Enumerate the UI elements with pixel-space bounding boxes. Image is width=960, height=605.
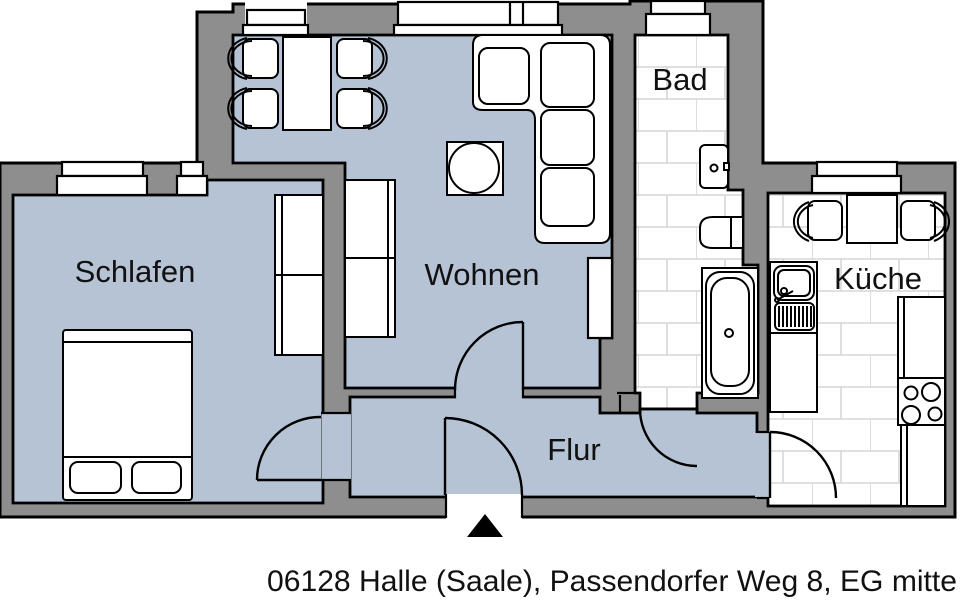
flur-label: Flur <box>547 432 600 467</box>
schlafen-wardrobe <box>275 195 323 355</box>
schlafen-window <box>62 162 143 176</box>
double-bed <box>63 330 192 500</box>
schlafen-label: Schlafen <box>75 254 196 289</box>
entrance-opening <box>446 494 522 519</box>
kueche-door-opening <box>755 433 769 497</box>
schlafen-door-opening <box>322 414 351 479</box>
wohnen-wardrobe <box>345 180 395 337</box>
radiator-niche <box>588 258 612 338</box>
counter-below-sink <box>770 333 817 412</box>
bad-window <box>651 1 705 14</box>
kueche-label: Küche <box>834 261 922 296</box>
coffee-table <box>447 142 503 195</box>
address-caption: 06128 Halle (Saale), Passendorfer Weg 8,… <box>267 565 957 598</box>
wohnen-window-left <box>247 10 305 25</box>
floor-plan-page: Schlafen Wohnen Bad Küche Flur 06128 Hal… <box>0 0 960 605</box>
kueche-window-sill <box>812 176 901 193</box>
bathtub <box>702 268 758 398</box>
wohnen-door-opening <box>456 386 522 399</box>
wohnen-window-right <box>398 2 558 25</box>
counter-bottom-right <box>901 425 945 506</box>
kitchen-table <box>847 195 897 243</box>
schlafen-wall-niche <box>181 162 203 176</box>
counter-right <box>898 297 945 378</box>
stove <box>898 378 945 425</box>
floor-plan-drawing: Schlafen Wohnen Bad Küche Flur 06128 Hal… <box>0 0 960 605</box>
wohnen-label: Wohnen <box>425 257 540 292</box>
dining-table <box>283 37 331 130</box>
toilet <box>700 217 743 248</box>
schlafen-window-sill <box>57 176 147 195</box>
bad-label: Bad <box>652 62 707 97</box>
bad-window-sill <box>646 14 710 35</box>
schlafen-wall-niche-sill <box>177 176 207 195</box>
washbasin <box>700 145 729 188</box>
kueche-window <box>817 162 897 176</box>
sink-unit <box>770 262 817 333</box>
wohnen-window-right-sill <box>394 25 562 35</box>
wohnen-window-left-sill <box>243 25 308 35</box>
